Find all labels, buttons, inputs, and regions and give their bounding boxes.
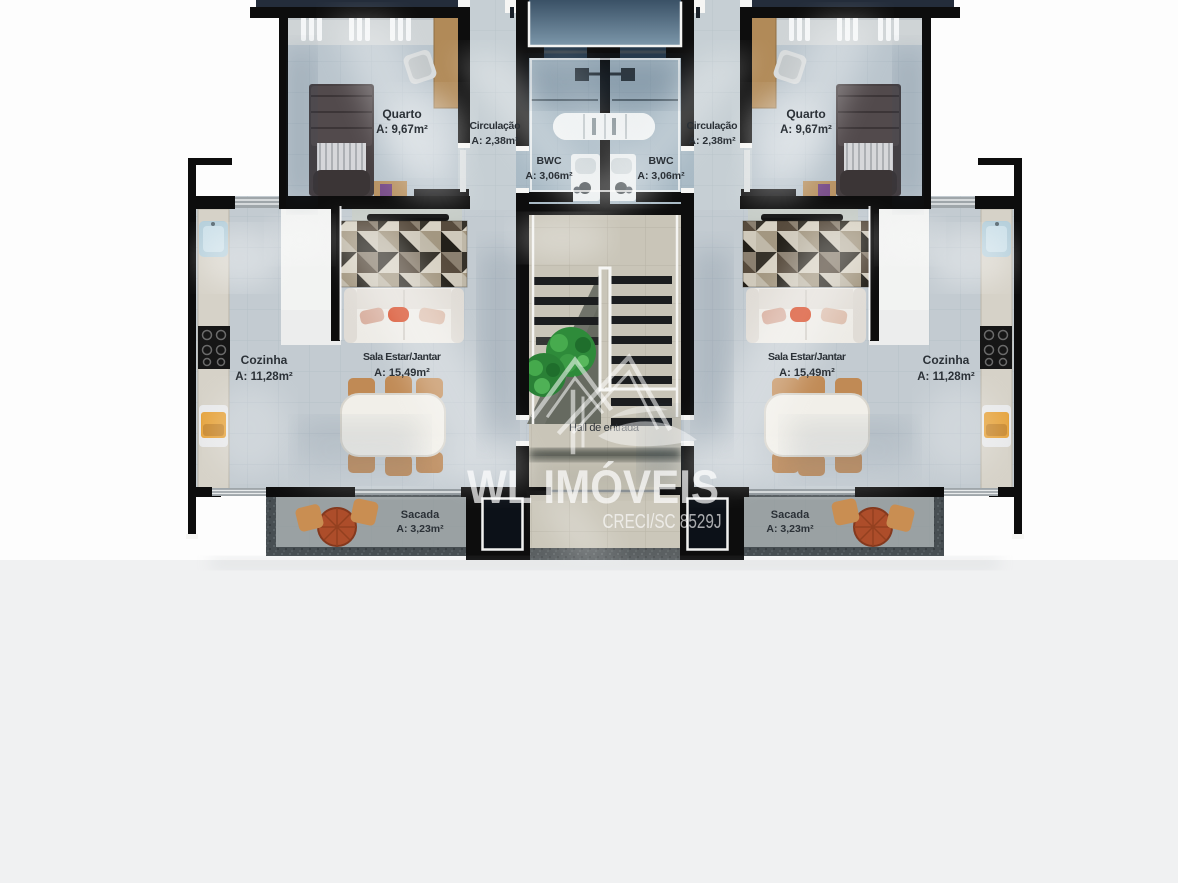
svg-text:A: 11,28m²: A: 11,28m²: [917, 371, 975, 383]
svg-text:A: 11,28m²: A: 11,28m²: [235, 371, 293, 383]
svg-text:A: 2,38m²: A: 2,38m²: [688, 135, 736, 147]
svg-text:BWC: BWC: [536, 155, 561, 167]
svg-text:A: 2,38m²: A: 2,38m²: [471, 135, 519, 147]
svg-text:A: 3,23m²: A: 3,23m²: [396, 523, 444, 535]
svg-text:Sala Estar/Jantar: Sala Estar/Jantar: [768, 351, 846, 363]
svg-text:A: 15,49m²: A: 15,49m²: [374, 367, 430, 379]
svg-text:A: 15,49m²: A: 15,49m²: [779, 367, 835, 379]
svg-text:Sacada: Sacada: [401, 509, 440, 521]
svg-text:Circulação: Circulação: [687, 120, 738, 132]
svg-text:CRECI/SC 8529J: CRECI/SC 8529J: [603, 511, 722, 533]
svg-text:Cozinha: Cozinha: [923, 353, 970, 367]
svg-text:Quarto: Quarto: [786, 107, 825, 121]
svg-text:WL IMÓVEIS: WL IMÓVEIS: [467, 460, 719, 513]
svg-text:A: 3,06m²: A: 3,06m²: [525, 170, 573, 182]
svg-text:Quarto: Quarto: [382, 107, 421, 121]
svg-text:Cozinha: Cozinha: [241, 353, 288, 367]
svg-text:A: 3,23m²: A: 3,23m²: [766, 523, 814, 535]
svg-text:Sacada: Sacada: [771, 509, 810, 521]
svg-text:Sala Estar/Jantar: Sala Estar/Jantar: [363, 351, 441, 363]
svg-text:Circulação: Circulação: [470, 120, 521, 132]
svg-text:A: 9,67m²: A: 9,67m²: [780, 124, 832, 136]
svg-text:A: 9,67m²: A: 9,67m²: [376, 124, 428, 136]
svg-text:BWC: BWC: [648, 155, 673, 167]
svg-text:A: 3,06m²: A: 3,06m²: [637, 170, 685, 182]
